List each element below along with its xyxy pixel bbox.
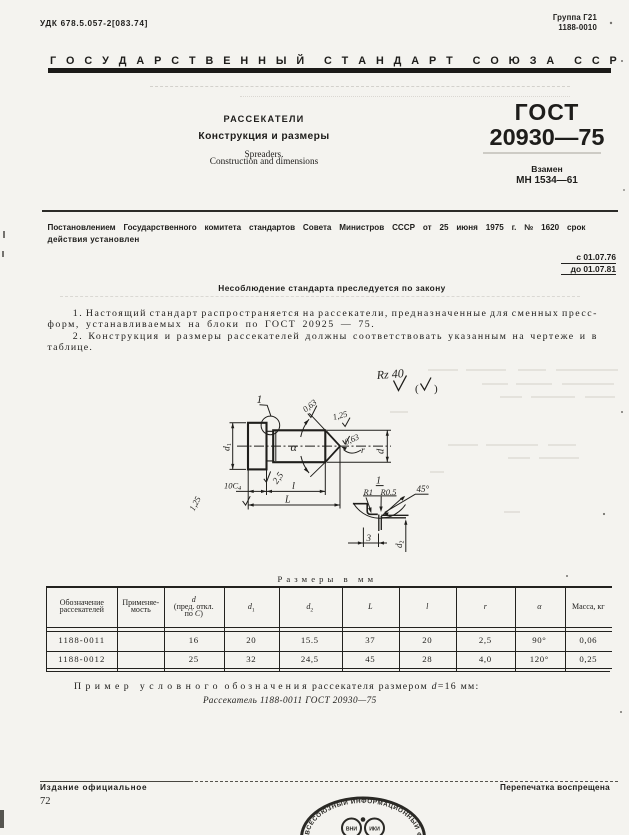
svg-text:(: ( xyxy=(415,383,419,395)
svg-text:1,25: 1,25 xyxy=(187,495,203,513)
svg-text:3: 3 xyxy=(366,533,372,543)
svg-text:2,5: 2,5 xyxy=(271,471,286,487)
svg-text:ИКИ: ИКИ xyxy=(369,827,380,833)
svg-text:ВНИ: ВНИ xyxy=(346,827,357,833)
svg-text:d2: d2 xyxy=(394,541,406,549)
svg-text:10C4: 10C4 xyxy=(224,481,241,493)
svg-text:r: r xyxy=(361,446,365,456)
svg-text:l: l xyxy=(292,481,295,492)
svg-text:d1: d1 xyxy=(223,443,234,451)
svg-text:): ) xyxy=(434,383,438,395)
svg-text:R0.5: R0.5 xyxy=(380,487,397,497)
svg-text:1,25: 1,25 xyxy=(332,409,349,422)
svg-text:α: α xyxy=(291,440,298,454)
svg-text:R1: R1 xyxy=(363,487,373,497)
svg-text:45°: 45° xyxy=(417,484,430,494)
svg-text:1: 1 xyxy=(257,394,263,406)
svg-text:1: 1 xyxy=(376,476,381,487)
svg-text:d: d xyxy=(376,448,387,454)
svg-text:0,63: 0,63 xyxy=(301,397,319,414)
svg-text:Rz 40: Rz 40 xyxy=(375,366,404,382)
svg-text:L: L xyxy=(284,495,291,506)
